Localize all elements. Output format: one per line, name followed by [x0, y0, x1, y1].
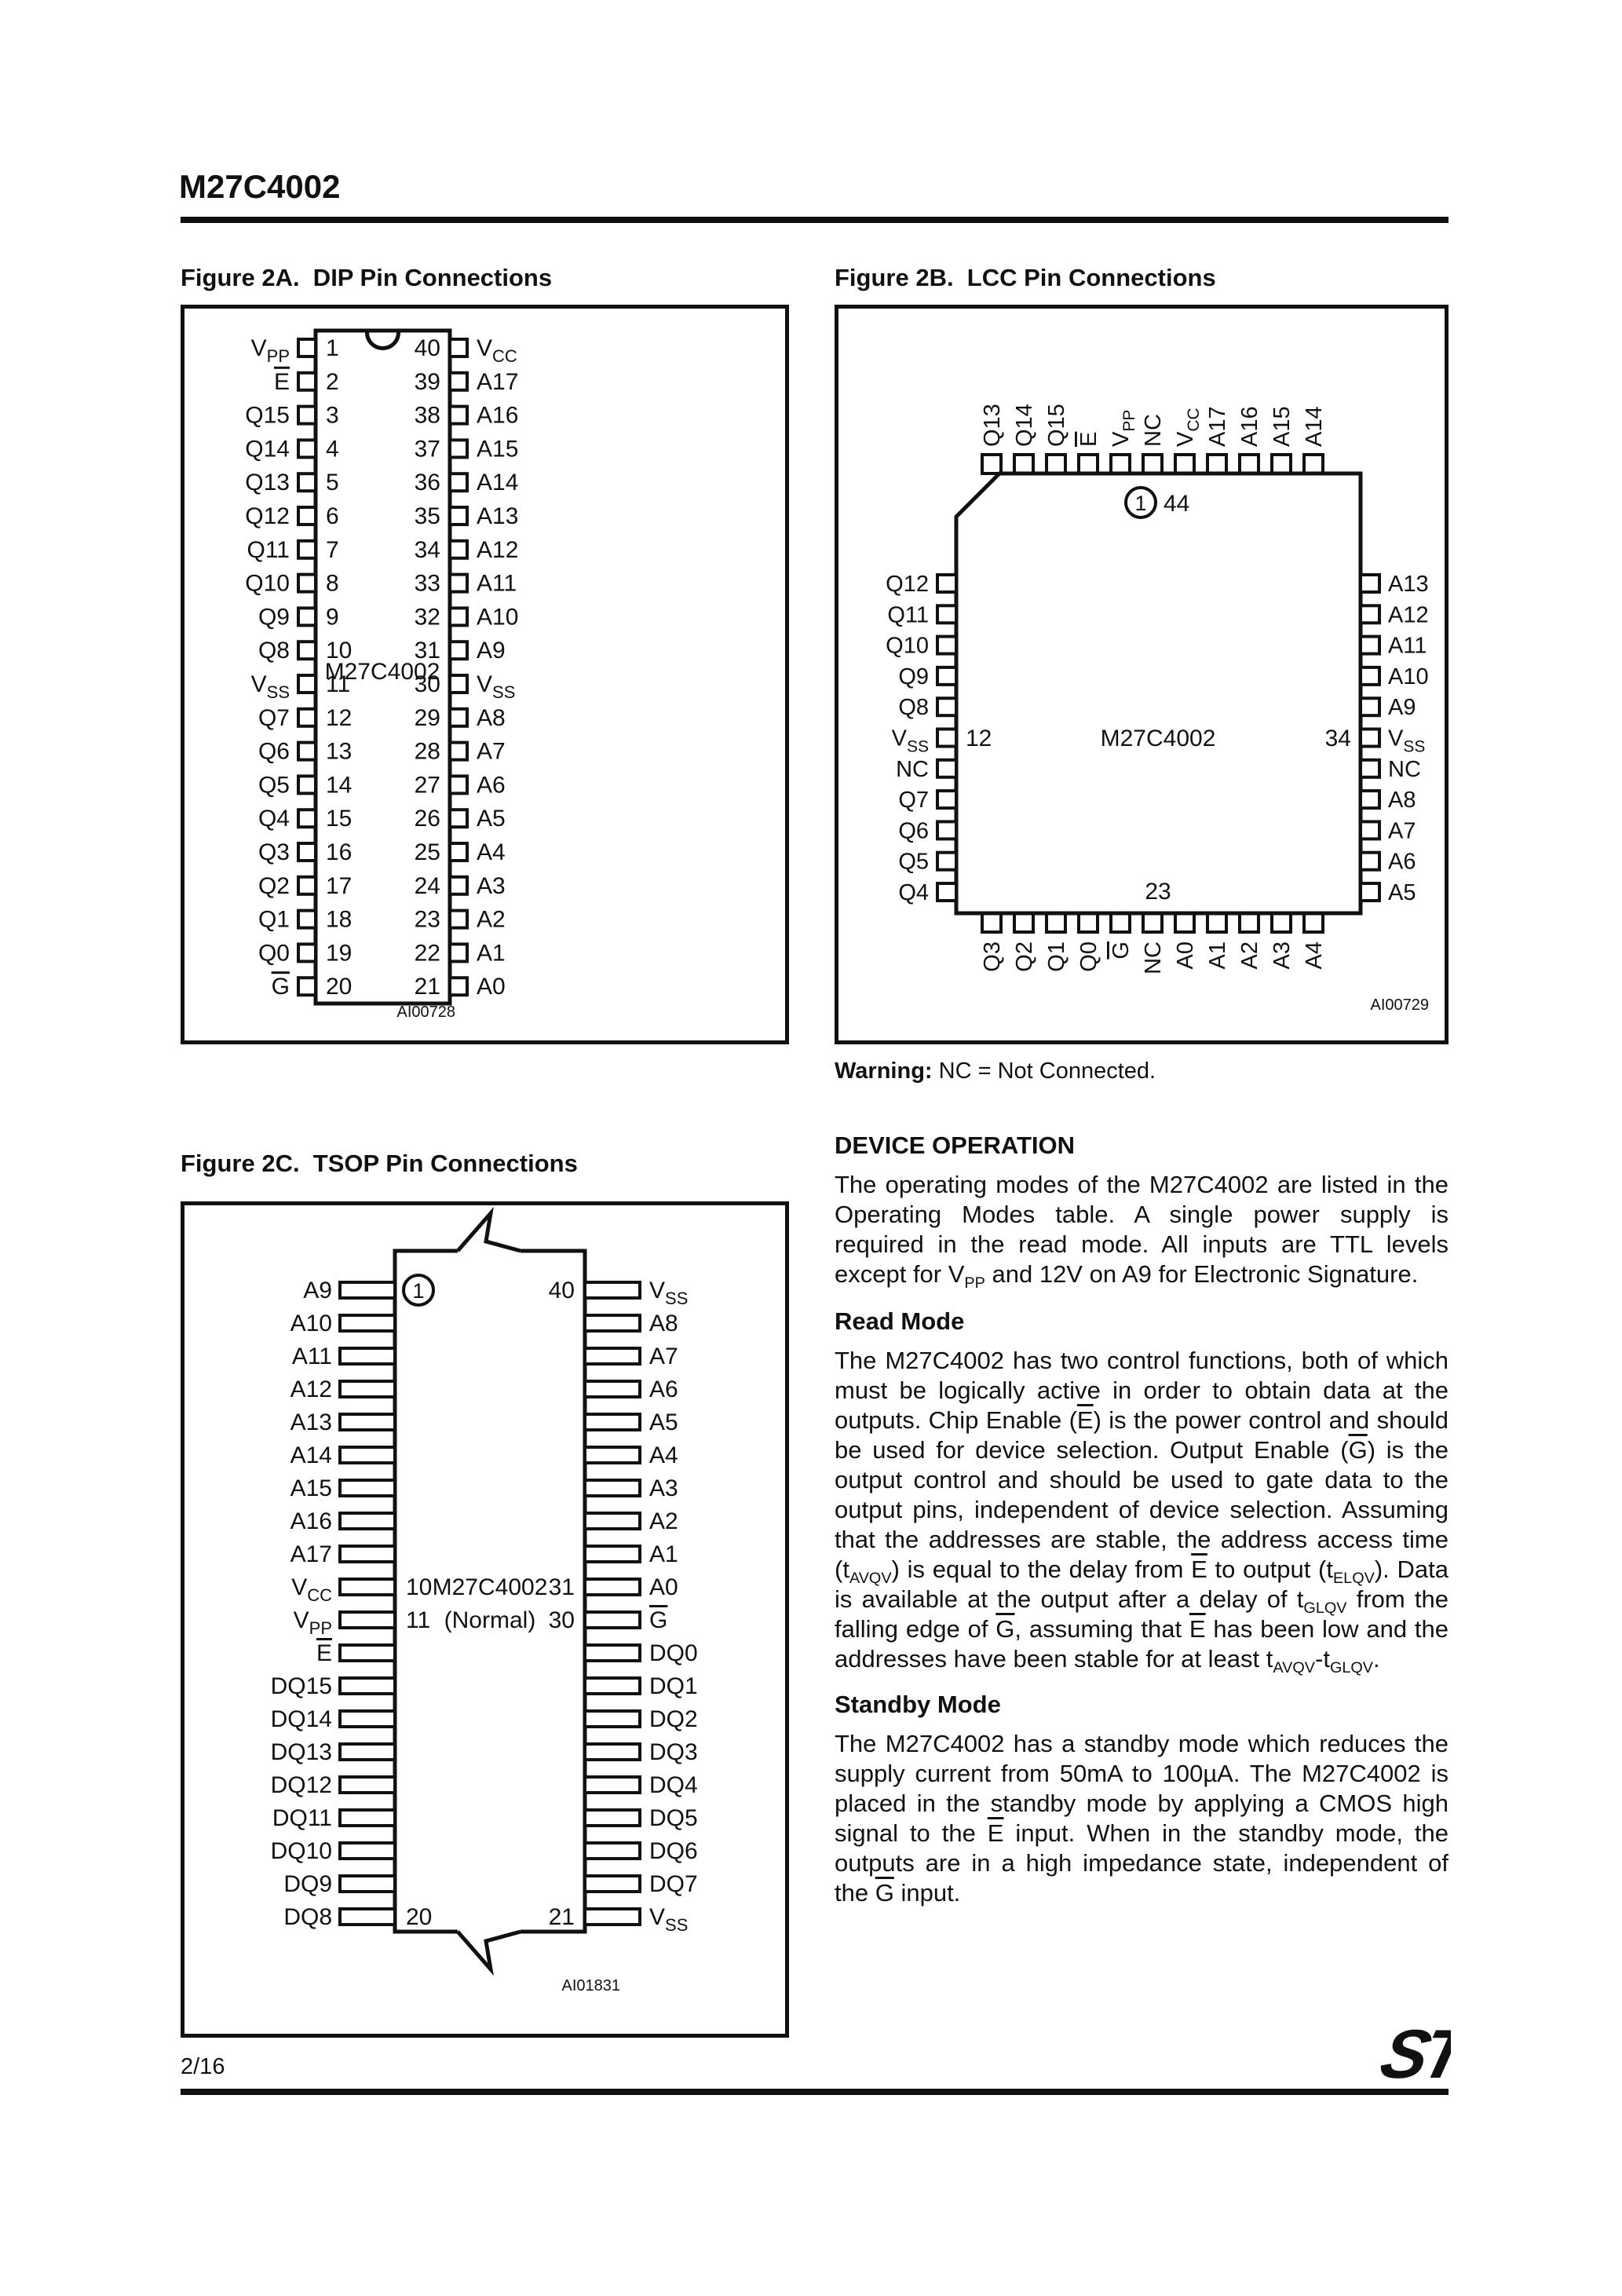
pin-stub: [340, 1480, 395, 1496]
pin-stub: [1361, 853, 1379, 870]
pin-stub: [1014, 913, 1033, 932]
pin-stub: [450, 339, 467, 356]
pin-stub: [1240, 913, 1259, 932]
pin-stub: [1207, 913, 1226, 932]
pin-stub: [585, 1777, 640, 1793]
pin-stub: [450, 608, 467, 625]
pin-number: 33: [415, 571, 440, 597]
pin-stub: [340, 1843, 395, 1859]
pin-number: 38: [415, 403, 440, 429]
pin-label: A1: [649, 1541, 678, 1567]
pin-label: VSS: [1388, 726, 1425, 756]
part-number-title: M27C4002: [179, 168, 340, 206]
pin-stub: [298, 642, 316, 659]
pin-number: 11: [406, 1607, 430, 1633]
pin-number: 39: [415, 369, 440, 395]
pin-stub: [585, 1381, 640, 1397]
pin-stub: [450, 373, 467, 390]
pin-label: Q9: [898, 664, 929, 689]
pin-stub: [298, 507, 316, 525]
pin-label: Q8: [898, 695, 929, 720]
pin-stub: [450, 877, 467, 894]
pin-stub: [298, 877, 316, 894]
pin-label: DQ10: [271, 1838, 332, 1864]
pin-label: Q2: [1012, 941, 1037, 972]
pin-label: A11: [292, 1344, 332, 1369]
pin-stub: [340, 1546, 395, 1562]
pin-label: A5: [649, 1409, 678, 1435]
pin-stub: [450, 743, 467, 760]
pin-number: 36: [415, 470, 440, 495]
pin-number: 40: [549, 1278, 575, 1303]
chip-label-line2: (Normal): [444, 1607, 536, 1633]
pin12-number: 12: [966, 726, 992, 751]
figure-2a-title: Figure 2A. DIP Pin Connections: [181, 264, 552, 292]
pin-stub: [1361, 760, 1379, 777]
pin-stub: [585, 1612, 640, 1628]
pin-label: A17: [1205, 406, 1230, 447]
pin-label: A10: [477, 604, 518, 630]
figure-2c-title: Figure 2C. TSOP Pin Connections: [181, 1150, 578, 1178]
warning-text: NC = Not Connected.: [933, 1058, 1156, 1084]
pin-label: DQ1: [649, 1673, 698, 1699]
pin-label: A2: [1237, 941, 1262, 969]
break-mask: [458, 1243, 521, 1259]
pin-stub: [1175, 913, 1194, 932]
pin-label: A16: [477, 403, 518, 429]
pin-stub: [450, 407, 467, 424]
pin-number: 5: [326, 470, 339, 495]
pin-label: VPP: [294, 1607, 332, 1638]
pin-label: A1: [477, 940, 506, 966]
pin-stub: [1014, 455, 1033, 473]
pin-number: 25: [415, 839, 440, 865]
pin-number: 37: [415, 436, 440, 462]
pin-stub: [1207, 455, 1226, 473]
pin-stub: [585, 1579, 640, 1595]
pin-label: A8: [477, 705, 506, 731]
pin-label: DQ11: [272, 1805, 332, 1831]
pin-stub: [585, 1843, 640, 1859]
pin-label: A14: [1302, 406, 1327, 447]
pin-number: 13: [326, 739, 352, 765]
pin-label: A15: [290, 1475, 332, 1501]
pin-stub: [340, 1777, 395, 1793]
pin-label: Q7: [258, 705, 290, 731]
pin-label: DQ14: [271, 1706, 332, 1732]
pin-stub: [1047, 913, 1065, 932]
pin-stub: [982, 455, 1001, 473]
pin-label: DQ7: [649, 1871, 698, 1897]
pin-label: Q13: [245, 470, 290, 495]
pin-number: 7: [326, 537, 339, 563]
pin-stub: [937, 729, 956, 747]
pin-stub: [1175, 455, 1194, 473]
dip-diagram: VPP1E2Q153Q144Q135Q126Q117Q108Q99Q810VSS…: [184, 309, 785, 1040]
pin-stub: [1361, 791, 1379, 808]
pin-label: Q15: [1044, 404, 1069, 447]
pin-stub: [298, 810, 316, 827]
pin-label: A13: [477, 503, 518, 529]
pin-label: Q12: [886, 572, 929, 597]
pin-label: Q9: [258, 604, 290, 630]
pin-number: 21: [415, 974, 440, 1000]
pin-stub: [1047, 455, 1065, 473]
pin-stub: [937, 791, 956, 808]
pin-label: A12: [1388, 602, 1429, 627]
pin-label: Q4: [258, 806, 290, 832]
pin-number: 29: [415, 705, 440, 731]
pin-label: Q10: [245, 571, 290, 597]
pin-stub: [298, 843, 316, 861]
pin-label: A16: [290, 1508, 332, 1534]
pin-label: A17: [290, 1541, 332, 1567]
pin-label: A4: [477, 839, 506, 865]
pin-label: E: [274, 369, 290, 395]
pin-label: DQ9: [283, 1871, 332, 1897]
pin-stub: [340, 1909, 395, 1925]
pin-stub: [585, 1447, 640, 1463]
pin-stub: [1361, 575, 1379, 592]
pin-label: VPP: [251, 335, 290, 366]
pin1-notch: [367, 333, 399, 349]
pin-stub: [298, 978, 316, 995]
lcc-pin-connections-figure: Q13Q14Q15EVPPNCVCCA17A16A15A14Q3Q2Q1Q0GN…: [835, 305, 1448, 1044]
pin-label: A0: [649, 1574, 678, 1600]
pin-label: A15: [477, 436, 518, 462]
pin-stub: [340, 1876, 395, 1892]
pin-number: 4: [326, 436, 339, 462]
pin-stub: [585, 1909, 640, 1925]
pin-number: 1: [326, 335, 339, 361]
pin-label: Q11: [247, 537, 290, 563]
pin-stub: [1304, 913, 1323, 932]
pin-stub: [340, 1447, 395, 1463]
pin-number: 24: [415, 873, 440, 899]
pin-stub: [1240, 455, 1259, 473]
pin-label: A8: [1388, 788, 1416, 813]
pin-stub: [585, 1480, 640, 1496]
pin-stub: [1079, 913, 1098, 932]
pin-stub: [298, 440, 316, 457]
tsop-pin-connections-figure: A9VSS140A10A8A11A7A12A6A13A5A14A4A15A3A1…: [181, 1201, 789, 2038]
pin-stub: [298, 608, 316, 625]
pin-stub: [585, 1645, 640, 1661]
pin-stub: [340, 1810, 395, 1826]
pin-number: 2: [326, 369, 339, 395]
lcc-body: [956, 473, 1361, 913]
standby-mode-paragraph: The M27C4002 has a standby mode which re…: [835, 1729, 1448, 1908]
pin-number: 14: [326, 772, 352, 798]
pin-number: 6: [326, 503, 339, 529]
pin-number: 28: [415, 739, 440, 765]
pin-label: G: [272, 974, 290, 1000]
pin-label: Q3: [980, 941, 1005, 972]
tsop-diagram: A9VSS140A10A8A11A7A12A6A13A5A14A4A15A3A1…: [184, 1205, 785, 2034]
pin-stub: [937, 760, 956, 777]
pin-number: 12: [326, 705, 352, 731]
pin-label: A3: [1269, 941, 1295, 969]
pin23-number: 23: [1145, 879, 1171, 905]
pin-stub: [585, 1876, 640, 1892]
pin-label: DQ13: [271, 1739, 332, 1765]
break-mask: [458, 1924, 521, 1940]
pin-label: A17: [477, 369, 518, 395]
pin-label: VCC: [291, 1574, 332, 1605]
pin-number: 20: [326, 974, 352, 1000]
pin-stub: [1111, 913, 1130, 932]
pin-stub: [340, 1579, 395, 1595]
pin-label: A7: [649, 1344, 678, 1369]
pin-label: VSS: [649, 1904, 688, 1935]
pin-label: A10: [1388, 664, 1429, 689]
pin-label: Q14: [245, 436, 290, 462]
pin-stub: [340, 1711, 395, 1727]
pin-stub: [937, 821, 956, 839]
pin-label: A11: [477, 571, 517, 597]
pin-label: Q5: [898, 850, 929, 875]
pin-stub: [937, 667, 956, 685]
pin-stub: [585, 1744, 640, 1760]
pin-stub: [585, 1711, 640, 1727]
pin-stub: [1361, 637, 1379, 654]
pin-stub: [937, 883, 956, 901]
pin-label: Q1: [1044, 941, 1069, 972]
pin-label: DQ3: [649, 1739, 698, 1765]
pin-stub: [340, 1348, 395, 1364]
pin-stub: [1361, 698, 1379, 715]
pin-number: 35: [415, 503, 440, 529]
nc-warning: Warning: NC = Not Connected.: [835, 1058, 1448, 1084]
pin-stub: [298, 675, 316, 693]
pin-label: Q15: [245, 403, 290, 429]
pin-stub: [1361, 605, 1379, 623]
pin-stub: [340, 1414, 395, 1430]
pin-label: A4: [649, 1442, 678, 1468]
pin-label: VSS: [649, 1278, 688, 1308]
pin-label: Q14: [1012, 404, 1037, 447]
pin-stub: [450, 507, 467, 525]
pin-stub: [298, 743, 316, 760]
pin-stub: [585, 1546, 640, 1562]
pin-number: 30: [549, 1607, 575, 1633]
device-operation-intro: The operating modes of the M27C4002 are …: [835, 1170, 1448, 1289]
pin-label: A8: [649, 1311, 678, 1336]
figure-code: AI00728: [396, 1004, 455, 1021]
st-logo-text: ST: [1373, 2015, 1451, 2087]
pin-label: Q12: [245, 503, 290, 529]
pin-label: DQ12: [271, 1772, 332, 1798]
pin-stub: [340, 1678, 395, 1694]
pin-stub: [298, 473, 316, 491]
pin-label: E: [1076, 432, 1101, 447]
pin-label: DQ2: [649, 1706, 698, 1732]
pin-label: A7: [477, 739, 506, 765]
pin-stub: [585, 1414, 640, 1430]
pin-stub: [340, 1315, 395, 1331]
pin-number: 17: [326, 873, 352, 899]
pin-stub: [340, 1612, 395, 1628]
pin-label: A5: [1388, 880, 1416, 905]
pin-label: Q3: [258, 839, 290, 865]
pin-label: DQ5: [649, 1805, 698, 1831]
pin-label: Q6: [258, 739, 290, 765]
pin-number: 27: [415, 772, 440, 798]
pin-stub: [1079, 455, 1098, 473]
pin-label: A5: [477, 806, 506, 832]
pin-label: NC: [896, 757, 929, 782]
pin-stub: [585, 1348, 640, 1364]
pin-number: 31: [549, 1574, 575, 1600]
chip-label: M27C4002: [325, 659, 440, 685]
pin-stub: [298, 944, 316, 961]
pin-label: A1: [1205, 941, 1230, 969]
pin-label: DQ4: [649, 1772, 698, 1798]
pin-stub: [450, 709, 467, 726]
pin-stub: [1143, 913, 1162, 932]
datasheet-page: M27C4002 Figure 2A. DIP Pin Connections …: [0, 0, 1622, 2296]
pin-number: 19: [326, 940, 352, 966]
pin-stub: [937, 575, 956, 592]
read-mode-heading: Read Mode: [835, 1307, 1448, 1336]
lcc-diagram: Q13Q14Q15EVPPNCVCCA17A16A15A14Q3Q2Q1Q0GN…: [838, 309, 1445, 1040]
pin-label: Q8: [258, 638, 290, 664]
pin-label: A2: [649, 1508, 678, 1534]
pin-label: A3: [477, 873, 506, 899]
pin-stub: [450, 944, 467, 961]
figure-2b-title: Figure 2B. LCC Pin Connections: [835, 264, 1216, 292]
warning-label: Warning:: [835, 1058, 933, 1084]
pin-stub: [585, 1810, 640, 1826]
pin-label: A0: [1173, 941, 1198, 969]
pin44-number: 44: [1164, 491, 1189, 517]
pin-stub: [340, 1513, 395, 1529]
figure-code: AI00729: [1370, 996, 1429, 1014]
pin-label: A14: [290, 1442, 332, 1468]
pin-label: A15: [1269, 406, 1295, 447]
pin-label: Q0: [1076, 941, 1101, 972]
pin-label: VSS: [251, 671, 290, 702]
pin-label: A6: [477, 772, 506, 798]
pin-stub: [450, 473, 467, 491]
pin-stub: [298, 911, 316, 928]
pin-stub: [298, 575, 316, 592]
pin-stub: [450, 642, 467, 659]
pin-number: 20: [406, 1904, 432, 1930]
pin-stub: [450, 776, 467, 793]
pin-number: 26: [415, 806, 440, 832]
figure-code: AI01831: [561, 1977, 620, 1994]
pin-stub: [1272, 913, 1291, 932]
chip-label: M27C4002: [1101, 726, 1216, 751]
header-rule: [181, 217, 1448, 223]
pin-label: A10: [290, 1311, 332, 1336]
pin-label: Q5: [258, 772, 290, 798]
pin-stub: [585, 1282, 640, 1298]
pin-stub: [298, 776, 316, 793]
pin-stub: [450, 575, 467, 592]
pin-label: Q6: [898, 818, 929, 843]
pin-stub: [1111, 455, 1130, 473]
pin-label: A9: [303, 1278, 332, 1303]
pin-label: A12: [477, 537, 518, 563]
pin-number: 15: [326, 806, 352, 832]
pin-stub: [585, 1678, 640, 1694]
pin-number: 21: [549, 1904, 575, 1930]
pin-label: Q13: [980, 404, 1005, 447]
pin-number: 34: [415, 537, 440, 563]
pin-number: 16: [326, 839, 352, 865]
pin-stub: [937, 637, 956, 654]
pin-label: A12: [290, 1377, 332, 1402]
pin-label: DQ0: [649, 1640, 698, 1666]
pin-label: VCC: [477, 335, 517, 366]
pin-label: NC: [1141, 941, 1166, 974]
pin-label: Q2: [258, 873, 290, 899]
pin-stub: [298, 339, 316, 356]
pin-number: 3: [326, 403, 339, 429]
pin-label: Q11: [887, 602, 929, 627]
pin-label: DQ8: [283, 1904, 332, 1930]
pin-stub: [1361, 729, 1379, 747]
pin-label: A2: [477, 907, 506, 933]
footer-rule: [181, 2089, 1448, 2095]
pin-label: NC: [1141, 414, 1166, 447]
pin-label: A9: [477, 638, 506, 664]
device-operation-heading: DEVICE OPERATION: [835, 1131, 1448, 1161]
pin-stub: [1304, 455, 1323, 473]
pin-number: 9: [326, 604, 339, 630]
pin-label: VSS: [477, 671, 515, 702]
pin-label: A11: [1388, 634, 1427, 659]
pin-stub: [937, 853, 956, 870]
pin-label: VPP: [1109, 410, 1138, 447]
dip-pin-connections-figure: VPP1E2Q153Q144Q135Q126Q117Q108Q99Q810VSS…: [181, 305, 789, 1044]
pin-number: 8: [326, 571, 339, 597]
pin-label: G: [1109, 941, 1134, 960]
pin-stub: [298, 541, 316, 558]
pin-label: VSS: [892, 726, 929, 756]
pin-stub: [1272, 455, 1291, 473]
pin-stub: [340, 1381, 395, 1397]
device-operation-section: DEVICE OPERATION The operating modes of …: [835, 1131, 1448, 1908]
pin-stub: [450, 911, 467, 928]
pin1-marker: 1: [1134, 492, 1146, 515]
pin-label: A7: [1388, 818, 1416, 843]
read-mode-paragraph: The M27C4002 has two control functions, …: [835, 1346, 1448, 1674]
pin-label: A0: [477, 974, 506, 1000]
pin-stub: [450, 541, 467, 558]
pin-label: Q0: [258, 940, 290, 966]
st-logo: ST: [1372, 2015, 1451, 2091]
pin-stub: [340, 1744, 395, 1760]
pin-label: Q7: [898, 788, 929, 813]
pin-label: E: [316, 1640, 332, 1666]
pin-label: A3: [649, 1475, 678, 1501]
pin-stub: [937, 698, 956, 715]
pin-stub: [1361, 821, 1379, 839]
pin-stub: [298, 373, 316, 390]
pin-label: A16: [1237, 406, 1262, 447]
pin-label: Q1: [258, 907, 290, 933]
pin-label: Q4: [898, 880, 929, 905]
page-number: 2/16: [181, 2054, 225, 2080]
pin-stub: [340, 1645, 395, 1661]
st-logo-graphic: ST: [1372, 2015, 1451, 2087]
pin-label: A4: [1302, 941, 1327, 969]
pin-number: 10: [406, 1574, 432, 1600]
pin-label: A6: [1388, 850, 1416, 875]
